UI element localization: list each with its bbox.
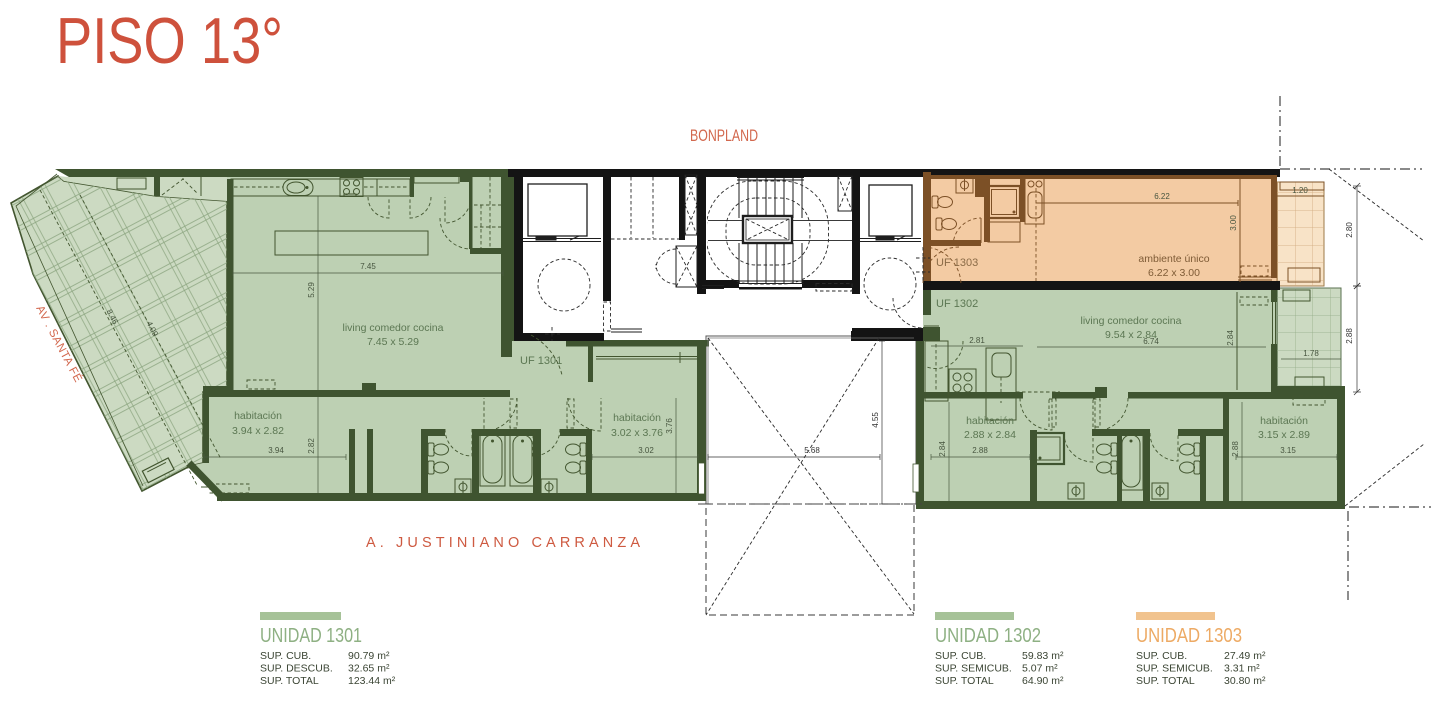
svg-text:SUP. TOTAL: SUP. TOTAL bbox=[1136, 675, 1195, 687]
svg-text:UNIDAD 1301: UNIDAD 1301 bbox=[260, 625, 362, 647]
svg-text:1.20: 1.20 bbox=[1292, 186, 1308, 195]
svg-text:2.80: 2.80 bbox=[1345, 222, 1354, 238]
svg-text:SUP. CUB.: SUP. CUB. bbox=[1136, 650, 1187, 662]
svg-text:3.15 x 2.89: 3.15 x 2.89 bbox=[1258, 429, 1310, 441]
svg-text:2.88 x 2.84: 2.88 x 2.84 bbox=[964, 429, 1016, 441]
svg-text:SUP. SEMICUB.: SUP. SEMICUB. bbox=[1136, 663, 1213, 675]
svg-text:SUP. DESCUB.: SUP. DESCUB. bbox=[260, 663, 333, 675]
svg-text:2.88: 2.88 bbox=[1345, 328, 1354, 344]
svg-text:59.83 m²: 59.83 m² bbox=[1022, 650, 1064, 662]
svg-text:7.45: 7.45 bbox=[360, 262, 376, 271]
svg-text:27.49 m²: 27.49 m² bbox=[1224, 650, 1266, 662]
svg-text:2.81: 2.81 bbox=[969, 336, 985, 345]
svg-text:3.02: 3.02 bbox=[638, 446, 654, 455]
svg-text:3.02 x 3.76: 3.02 x 3.76 bbox=[611, 427, 663, 439]
svg-text:32.65 m²: 32.65 m² bbox=[348, 663, 390, 675]
svg-text:5.68: 5.68 bbox=[804, 446, 820, 455]
svg-text:1.78: 1.78 bbox=[1303, 349, 1319, 358]
svg-text:2.84: 2.84 bbox=[938, 441, 947, 457]
svg-text:2.88: 2.88 bbox=[972, 446, 988, 455]
svg-text:UNIDAD 1303: UNIDAD 1303 bbox=[1136, 625, 1242, 647]
svg-text:4.55: 4.55 bbox=[871, 412, 880, 428]
svg-text:BONPLAND: BONPLAND bbox=[690, 127, 758, 145]
svg-text:living comedor cocina: living comedor cocina bbox=[1081, 315, 1182, 327]
svg-text:3.94 x 2.82: 3.94 x 2.82 bbox=[232, 425, 284, 437]
svg-text:123.44 m²: 123.44 m² bbox=[348, 675, 396, 687]
svg-text:7.45 x 5.29: 7.45 x 5.29 bbox=[367, 336, 419, 348]
svg-text:64.90 m²: 64.90 m² bbox=[1022, 675, 1064, 687]
svg-text:5.07 m²: 5.07 m² bbox=[1022, 663, 1058, 675]
svg-text:3.76: 3.76 bbox=[665, 418, 674, 434]
svg-text:3.31 m²: 3.31 m² bbox=[1224, 663, 1260, 675]
svg-text:6.22: 6.22 bbox=[1154, 192, 1170, 201]
svg-text:living comedor cocina: living comedor cocina bbox=[343, 322, 444, 334]
svg-text:2.82: 2.82 bbox=[307, 438, 316, 454]
svg-text:3.00: 3.00 bbox=[1229, 215, 1238, 231]
svg-text:PISO 13°: PISO 13° bbox=[56, 4, 283, 77]
svg-text:SUP. CUB.: SUP. CUB. bbox=[260, 650, 311, 662]
svg-text:ambiente único: ambiente único bbox=[1138, 253, 1209, 265]
svg-text:SUP. SEMICUB.: SUP. SEMICUB. bbox=[935, 663, 1012, 675]
svg-text:habitación: habitación bbox=[1260, 415, 1308, 427]
svg-text:SUP. CUB.: SUP. CUB. bbox=[935, 650, 986, 662]
svg-text:UF 1302: UF 1302 bbox=[936, 298, 978, 310]
svg-text:3.94: 3.94 bbox=[268, 446, 284, 455]
svg-text:habitación: habitación bbox=[966, 415, 1014, 427]
svg-text:2.84: 2.84 bbox=[1226, 330, 1235, 346]
svg-text:UNIDAD 1302: UNIDAD 1302 bbox=[935, 625, 1041, 647]
svg-text:30.80 m²: 30.80 m² bbox=[1224, 675, 1266, 687]
svg-text:6.74: 6.74 bbox=[1143, 337, 1159, 346]
svg-text:habitación: habitación bbox=[234, 410, 282, 422]
svg-text:3.15: 3.15 bbox=[1280, 446, 1296, 455]
svg-text:6.22 x 3.00: 6.22 x 3.00 bbox=[1148, 267, 1200, 279]
svg-text:UF 1303: UF 1303 bbox=[936, 257, 978, 269]
svg-text:5.29: 5.29 bbox=[307, 282, 316, 298]
svg-text:SUP. TOTAL: SUP. TOTAL bbox=[260, 675, 319, 687]
svg-text:90.79 m²: 90.79 m² bbox=[348, 650, 390, 662]
svg-text:habitación: habitación bbox=[613, 412, 661, 424]
svg-text:SUP. TOTAL: SUP. TOTAL bbox=[935, 675, 994, 687]
svg-text:2.88: 2.88 bbox=[1231, 441, 1240, 457]
svg-text:UF 1301: UF 1301 bbox=[520, 355, 562, 367]
